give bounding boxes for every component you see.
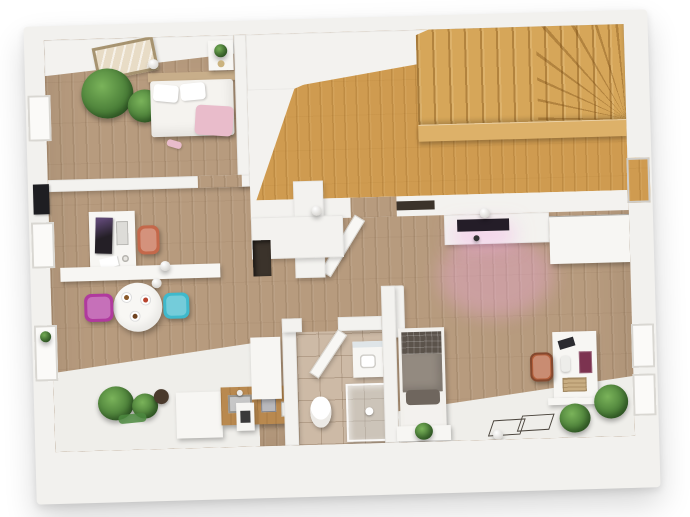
books-purple: [579, 351, 593, 373]
bed-single: [398, 327, 447, 428]
shower-head: [365, 407, 373, 415]
fireplace-niche: [253, 240, 272, 276]
wall: [282, 318, 302, 333]
desk-lamp: [561, 356, 570, 372]
bed-double: [148, 71, 237, 139]
desk: [89, 211, 137, 274]
window-recessed: [31, 222, 55, 269]
appliance-front: [240, 411, 250, 423]
tv-screen: [457, 218, 509, 231]
vase-flowers: [214, 44, 227, 57]
washbasin: [352, 341, 383, 378]
chair-cushion: [166, 295, 187, 316]
dining-chair-teal: [163, 292, 190, 319]
basin-bowl: [360, 354, 376, 368]
pillow-gray: [406, 389, 440, 405]
door-opening: [350, 196, 397, 217]
window-recessed: [34, 325, 59, 382]
desk-chair-orange: [137, 225, 160, 255]
kitchen-base-cabinet: [176, 391, 223, 438]
apartment-plan: [23, 9, 660, 504]
pink-slippers: [166, 139, 182, 150]
mirror: [352, 341, 382, 348]
apartment-interior: [44, 24, 635, 452]
pillow: [180, 82, 207, 101]
window-recessed: [27, 95, 51, 142]
door-opening: [198, 175, 242, 188]
food-item: [133, 314, 138, 319]
monitor: [95, 217, 113, 253]
floorplan-render: [0, 0, 690, 517]
wardrobe-cabinet: [549, 214, 630, 264]
doormat: [517, 414, 555, 432]
chair-cushion: [140, 228, 157, 251]
bench-plant: [415, 423, 433, 440]
staircase-fan-steps: [536, 24, 627, 121]
laptop: [558, 337, 576, 350]
plaid-blanket: [401, 331, 442, 354]
decor-dot: [217, 60, 224, 67]
chair-cushion: [533, 355, 551, 378]
nightstand: [208, 40, 234, 71]
windowsill-plant: [40, 331, 51, 342]
mug: [122, 255, 129, 262]
pink-throw-blanket: [194, 104, 234, 136]
mini-cabinet: [236, 403, 255, 431]
right-wall-niche: [626, 157, 650, 203]
bed-end-bench: [397, 425, 451, 442]
dining-table-round: [113, 282, 163, 332]
desk-chair-rust: [530, 352, 554, 382]
wall-picture-frame: [33, 184, 50, 214]
desk-2: [552, 331, 598, 398]
sideboard: [60, 263, 220, 281]
storage-basket: [562, 377, 586, 392]
window-recessed: [631, 323, 655, 368]
tall-cabinet: [250, 337, 282, 400]
pillow: [153, 84, 179, 103]
window-recessed: [632, 373, 656, 416]
room-bedroom-1: [44, 35, 238, 192]
pendant-lamp: [152, 278, 162, 288]
wall: [338, 316, 382, 331]
keyboard: [116, 221, 129, 245]
gray-duvet: [402, 353, 443, 392]
chair-cushion: [87, 296, 111, 319]
dining-chair-magenta: [84, 293, 114, 322]
potted-plant: [81, 68, 134, 119]
white-sheet: [404, 405, 442, 424]
